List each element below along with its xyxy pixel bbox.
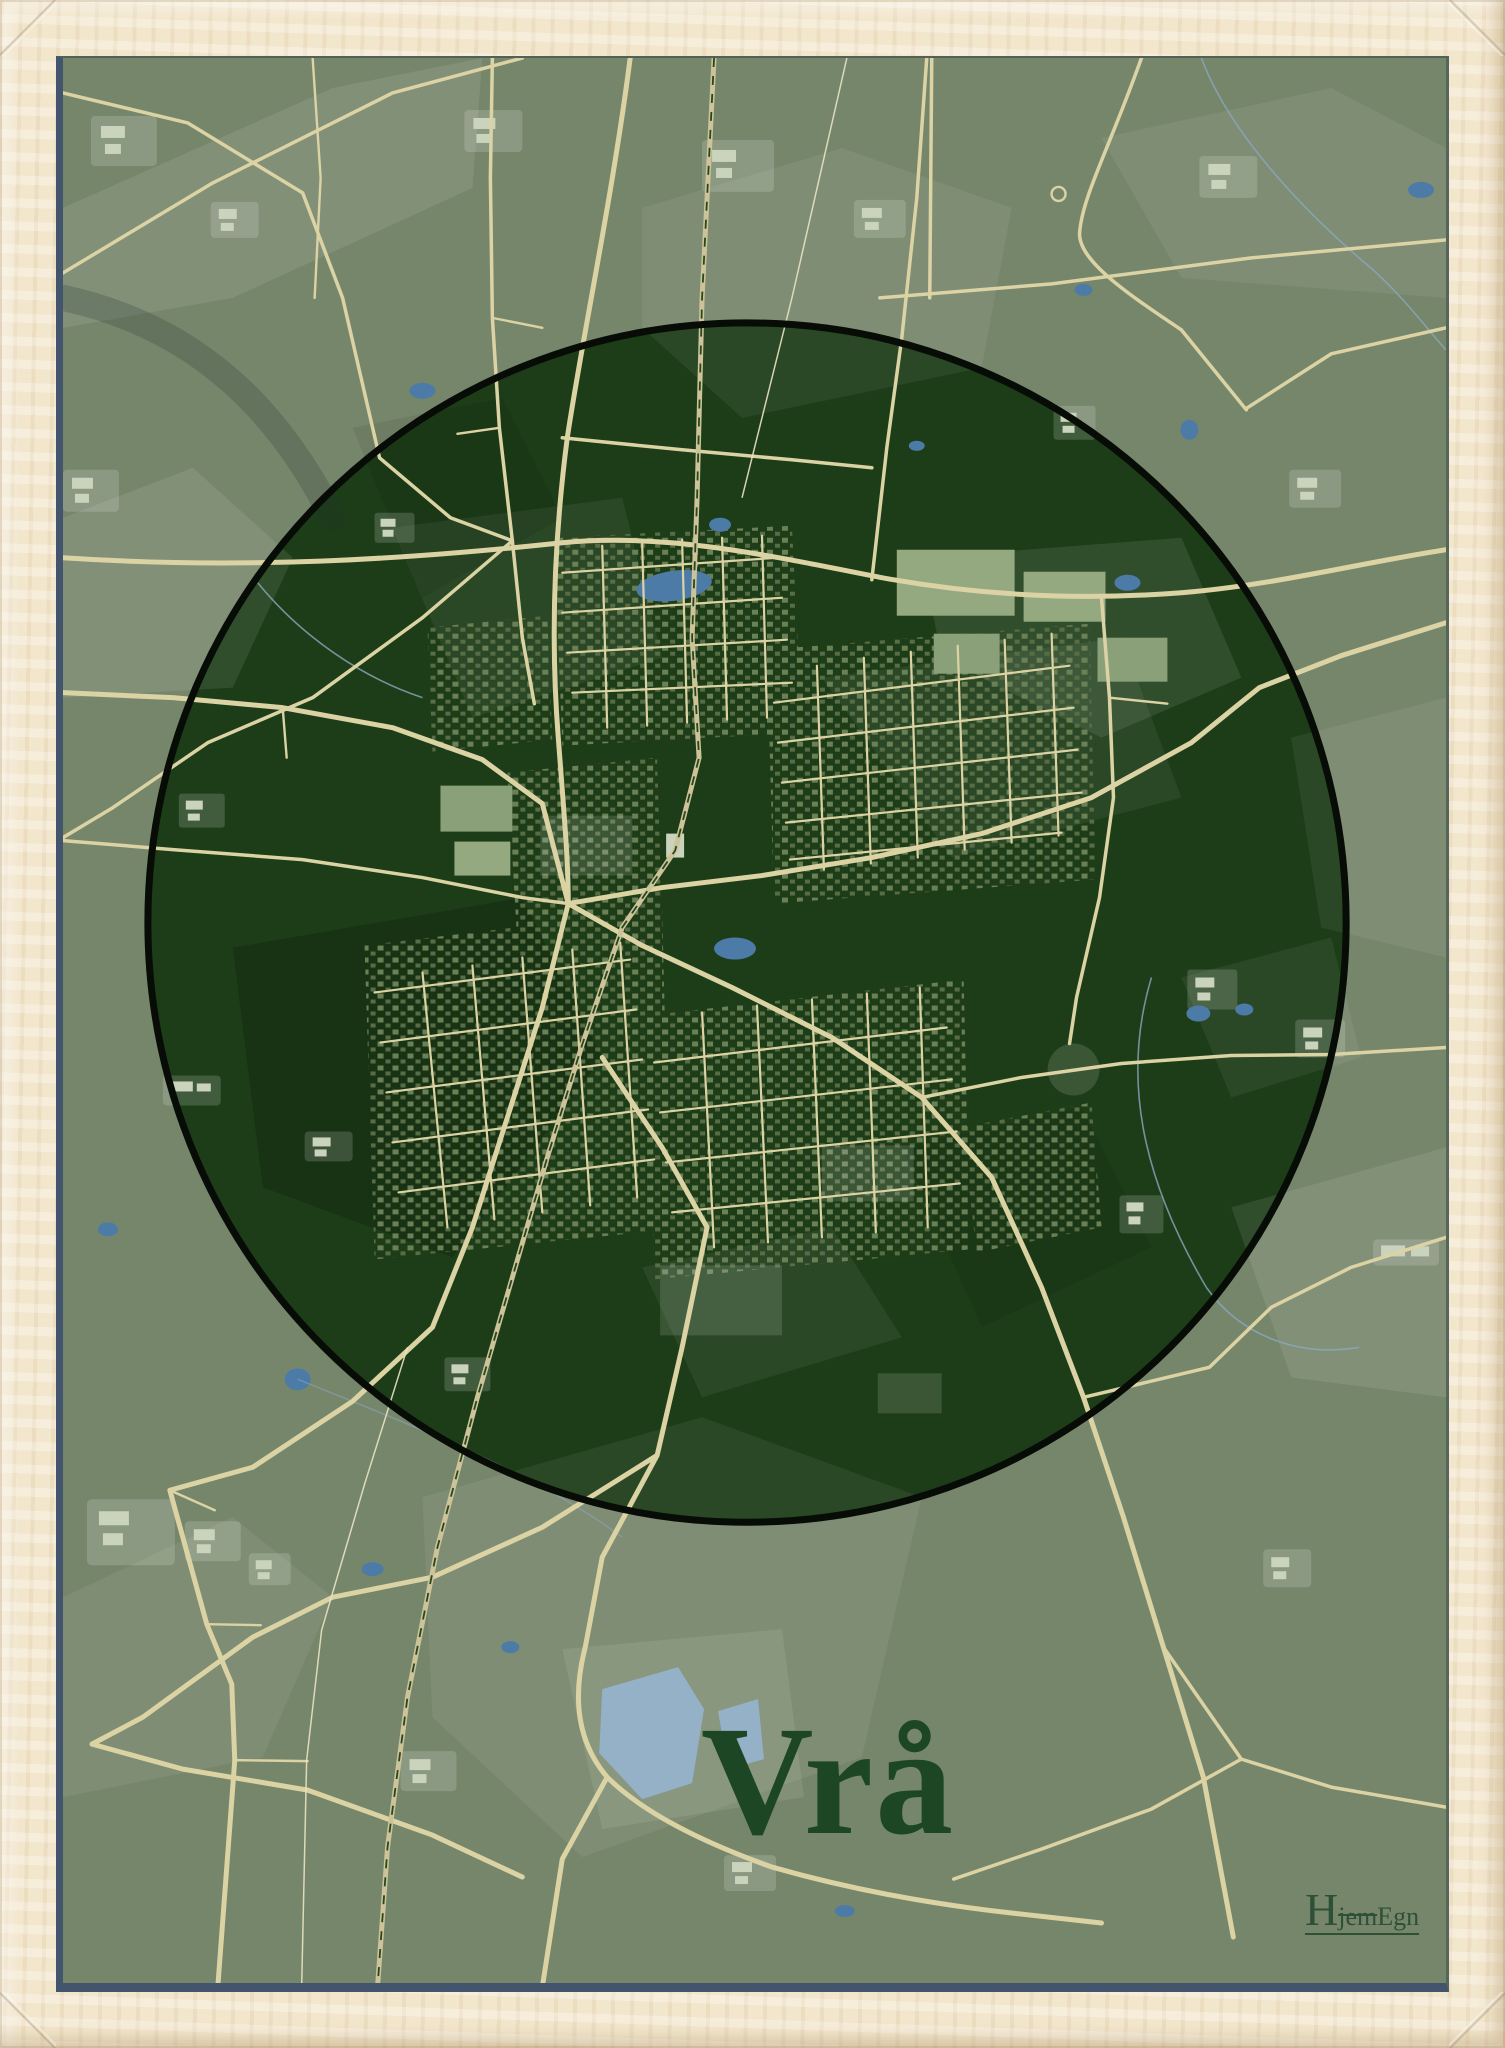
poster-title: Vrå [701,1703,955,1859]
frame-miter-bottom-left [0,1992,56,2048]
brand-logo-mid: jem [1338,1914,1377,1917]
frame-miter-top-right [1449,0,1505,56]
framed-map-poster: Vrå HjemEgn [0,0,1505,2048]
frame-miter-bottom-right [1449,1992,1505,2048]
brand-logo: HjemEgn [1305,1910,1419,1935]
map-poster: Vrå HjemEgn [56,56,1449,1992]
frame-miter-top-left [0,0,56,56]
